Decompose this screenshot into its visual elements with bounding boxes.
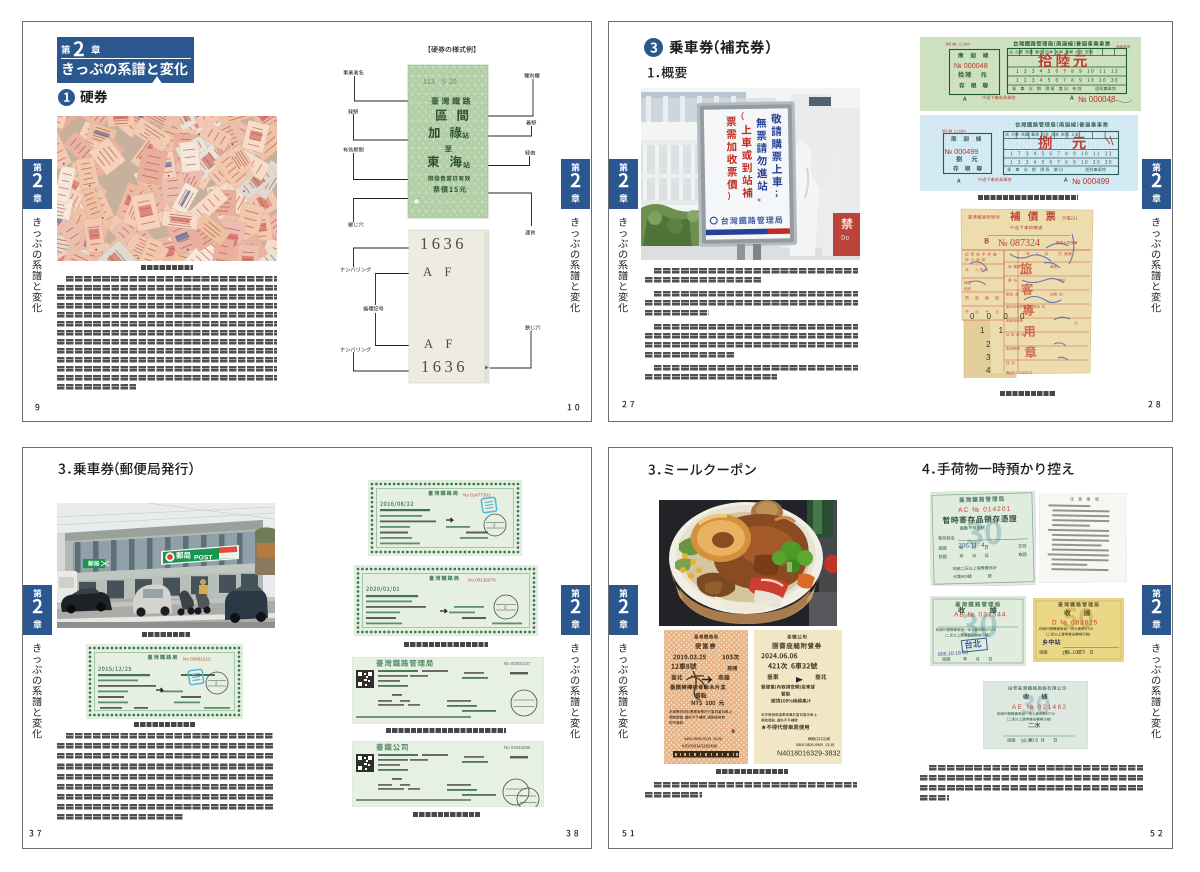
svg-text:AE № 021482: AE № 021482: [1012, 704, 1067, 711]
svg-text:No 01477301: No 01477301: [463, 493, 491, 498]
svg-text:1636: 1636: [420, 234, 467, 253]
svg-text:№ 000499: № 000499: [945, 147, 979, 156]
svg-text:1 1: 1 1: [980, 326, 1009, 335]
svg-text:106.10.23: 106.10.23: [1062, 649, 1085, 656]
svg-text:No 00001337: No 00001337: [504, 661, 531, 666]
svg-text:No 02046290: No 02046290: [504, 745, 531, 750]
svg-text:No 00136079: No 00136079: [468, 578, 496, 583]
svg-text:A F: A F: [423, 265, 456, 279]
svg-text:95.10.6: 95.10.6: [1021, 738, 1039, 745]
svg-text:N4018016329-3832: N4018016329-3832: [777, 749, 841, 758]
svg-text:1636: 1636: [421, 357, 468, 376]
svg-text:3: 3: [986, 353, 991, 362]
svg-text:AC № 014201: AC № 014201: [958, 506, 1011, 514]
svg-text:A F: A F: [424, 337, 457, 351]
svg-text:POST: POST: [194, 555, 213, 562]
svg-text:0 0 0 0: 0 0 0 0: [970, 312, 1029, 321]
svg-text:4: 4: [986, 366, 991, 375]
svg-text:No 00891212: No 00891212: [183, 657, 211, 662]
svg-text:№ 087324: № 087324: [998, 238, 1040, 249]
svg-text:№ 000499: № 000499: [1072, 177, 1110, 186]
svg-text:2: 2: [986, 340, 991, 349]
svg-text:№ 000048: № 000048: [954, 61, 988, 70]
svg-text:D № 083825: D № 083825: [1052, 620, 1098, 627]
